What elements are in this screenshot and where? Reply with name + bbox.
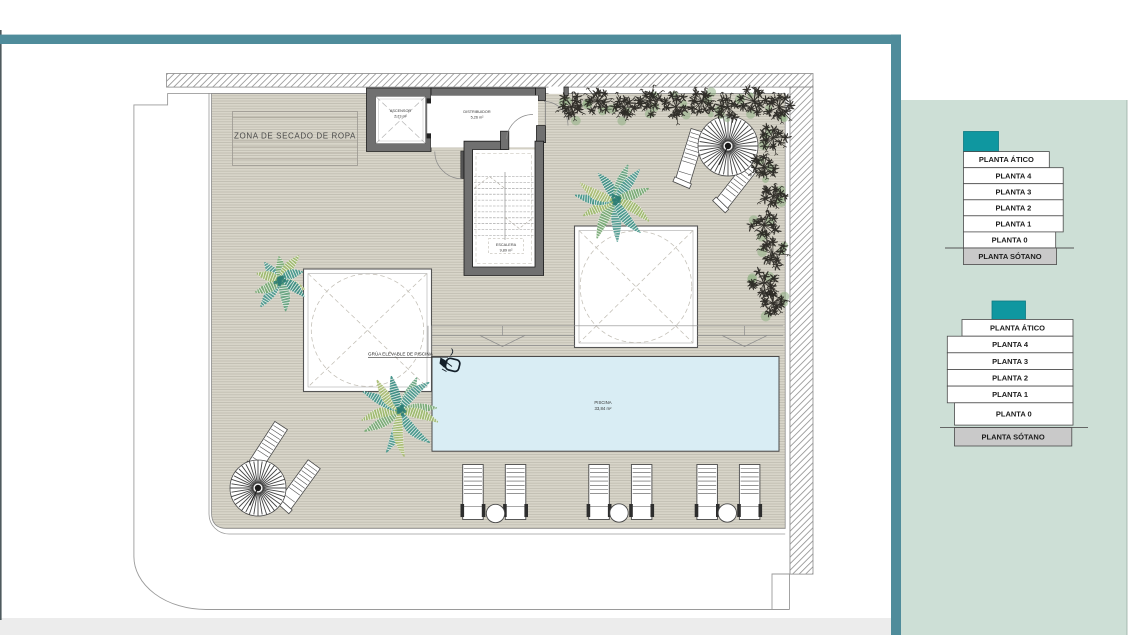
svg-text:PLANTA 4: PLANTA 4 — [995, 171, 1032, 180]
svg-text:PLANTA ÁTICO: PLANTA ÁTICO — [979, 155, 1034, 164]
svg-text:PLANTA 1: PLANTA 1 — [995, 220, 1031, 229]
svg-text:PLANTA 2: PLANTA 2 — [995, 203, 1031, 212]
svg-text:PISCINA: PISCINA — [594, 400, 611, 405]
svg-text:PLANTA 4: PLANTA 4 — [992, 340, 1029, 349]
svg-text:PLANTA ÁTICO: PLANTA ÁTICO — [990, 324, 1045, 333]
svg-text:ZONA DE SECADO DE ROPA: ZONA DE SECADO DE ROPA — [234, 132, 356, 141]
svg-text:PLANTA 0: PLANTA 0 — [996, 410, 1032, 419]
svg-text:PLANTA SÓTANO: PLANTA SÓTANO — [981, 432, 1044, 441]
svg-text:9,89 m²: 9,89 m² — [500, 249, 514, 253]
svg-text:33,84 m²: 33,84 m² — [595, 406, 613, 411]
svg-text:2,73 m²: 2,73 m² — [394, 115, 408, 119]
svg-text:ASCENSOR: ASCENSOR — [390, 109, 412, 113]
svg-text:DISTRIBUIDOR: DISTRIBUIDOR — [463, 110, 490, 114]
svg-text:PLANTA 2: PLANTA 2 — [992, 373, 1028, 382]
svg-text:5,26 m²: 5,26 m² — [471, 116, 485, 120]
svg-text:ESCALERA: ESCALERA — [496, 243, 517, 247]
svg-text:PLANTA 0: PLANTA 0 — [992, 236, 1028, 245]
svg-text:PLANTA 1: PLANTA 1 — [992, 390, 1028, 399]
svg-text:PLANTA 3: PLANTA 3 — [995, 187, 1031, 196]
svg-text:PLANTA SÓTANO: PLANTA SÓTANO — [978, 252, 1041, 261]
svg-text:PLANTA 3: PLANTA 3 — [992, 357, 1028, 366]
svg-text:GRÚA ELEVABLE DE PISCINA: GRÚA ELEVABLE DE PISCINA — [368, 351, 434, 357]
